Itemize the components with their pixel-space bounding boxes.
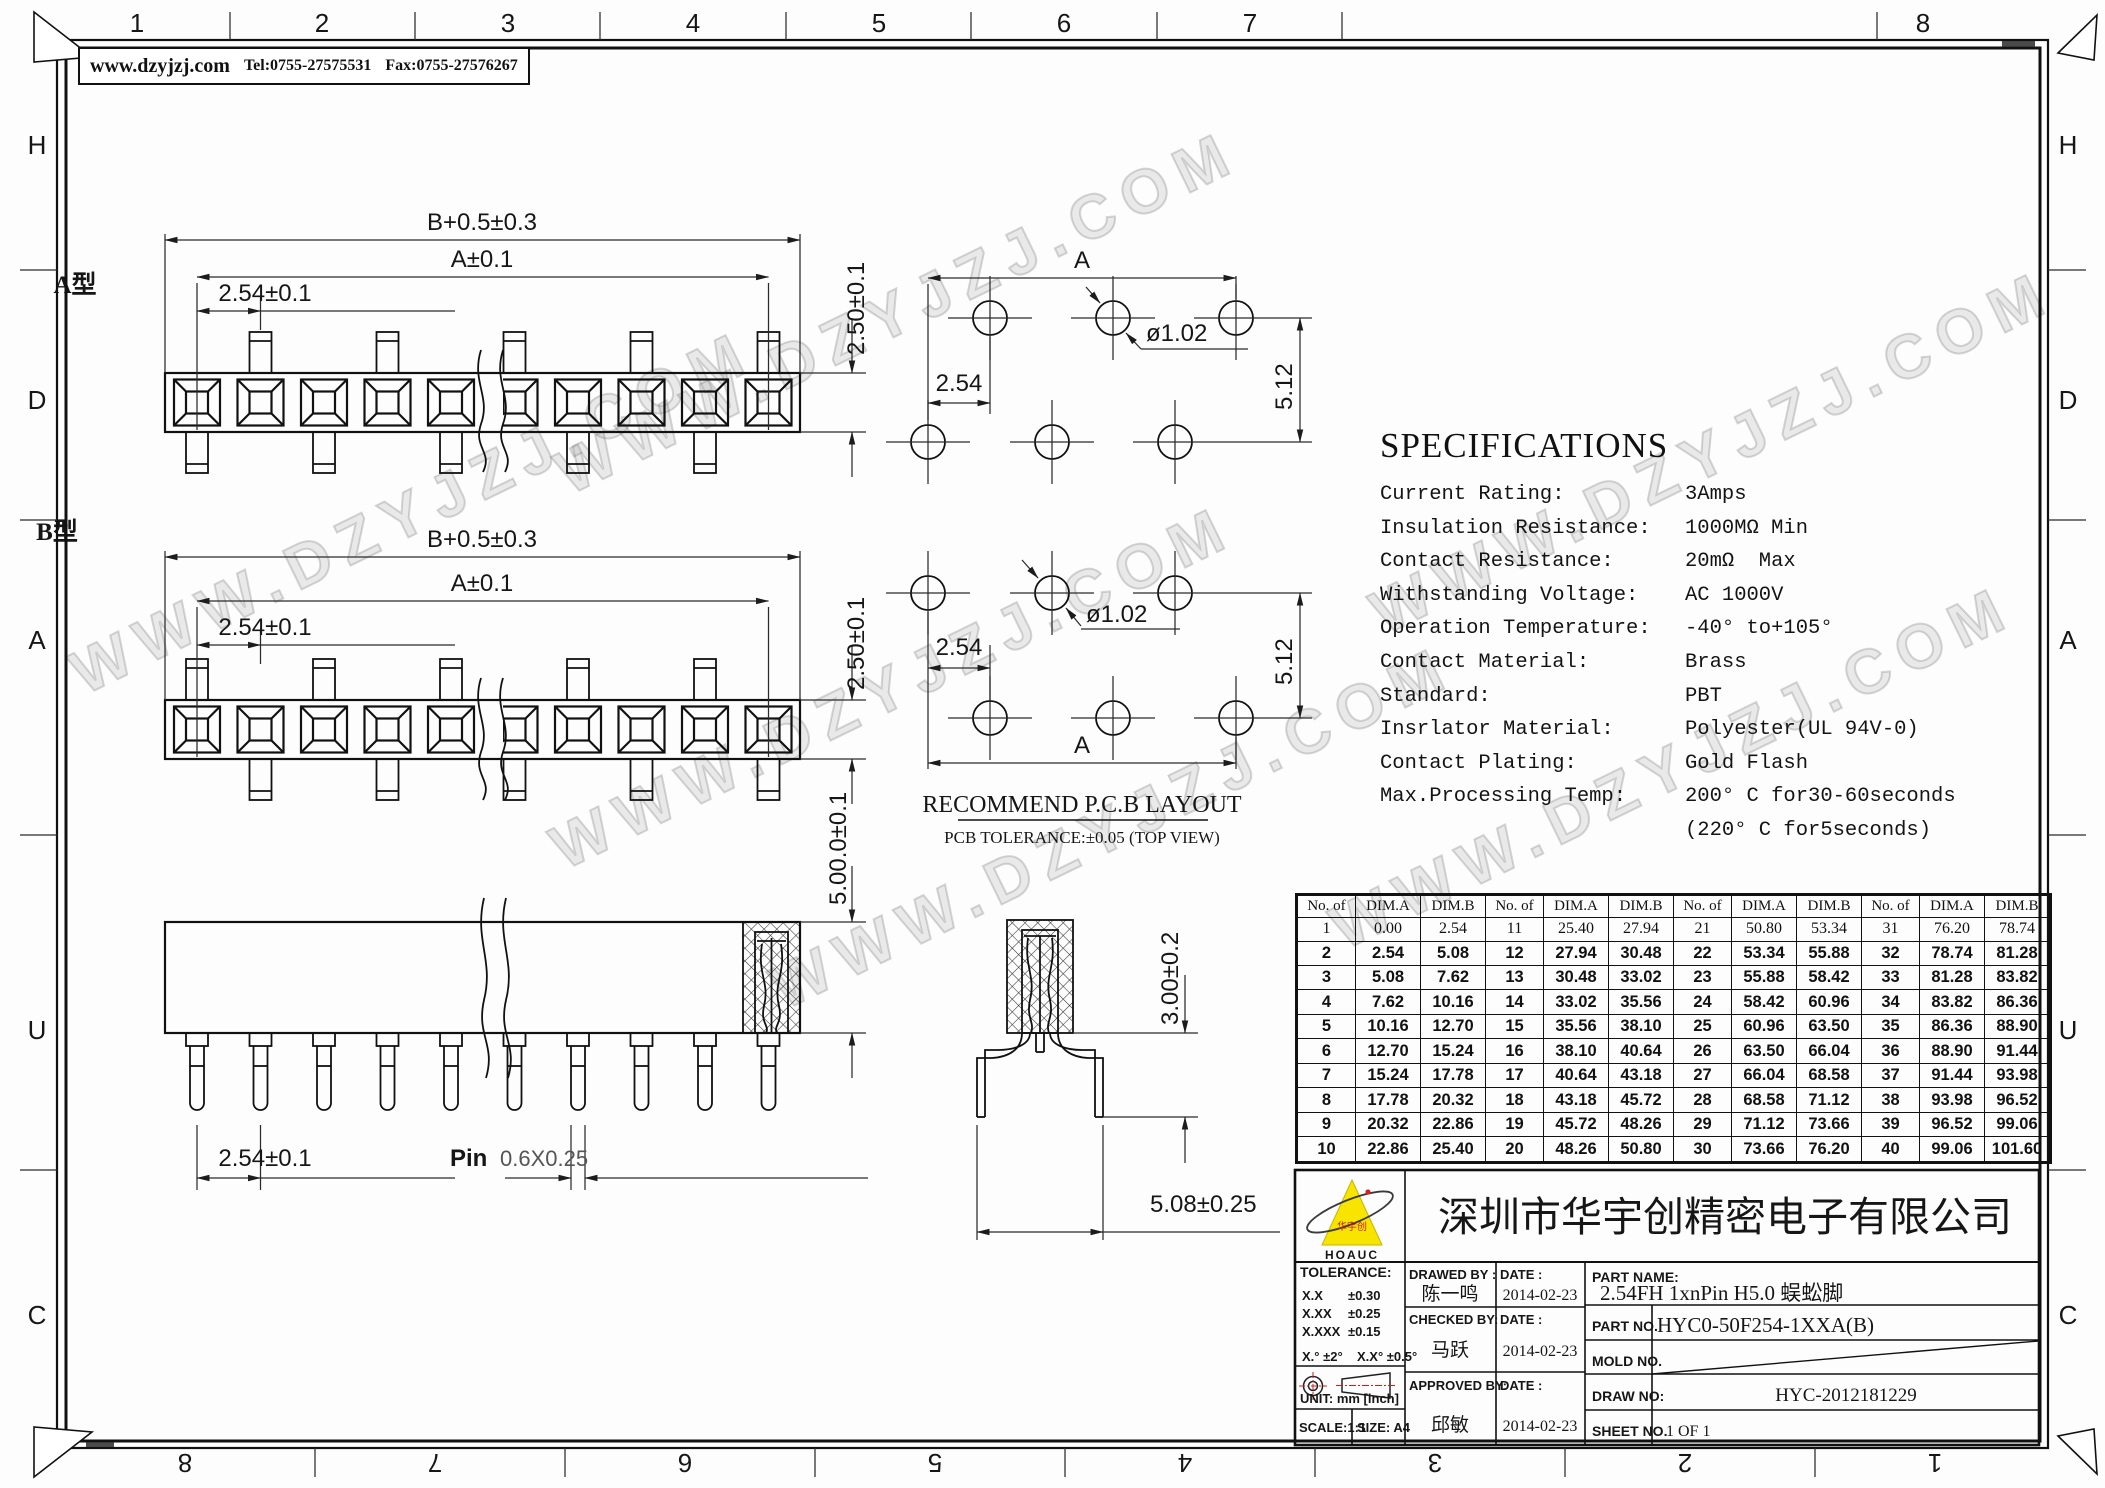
table-cell: 21 [1674, 918, 1732, 941]
table-cell: 12.70 [1421, 1014, 1486, 1038]
pcb-dim-hole-2: ø1.02 [1086, 601, 1147, 628]
table-cell: 71.12 [1732, 1112, 1797, 1136]
smt-leg [504, 332, 526, 373]
part-no-value: HYC0-50F254-1XXA(B) [1657, 1313, 1874, 1337]
table-cell: 38.10 [1544, 1039, 1609, 1063]
table-cell: 83.82 [1920, 990, 1985, 1014]
company-name: 深圳市华宇创精密电子有限公司 [1438, 1194, 2012, 1240]
table-cell: 2.54 [1421, 918, 1486, 941]
contact-pin [317, 1046, 331, 1110]
telephone-text: Tel:0755-27575531 [244, 57, 371, 75]
table-cell: 7.62 [1421, 965, 1486, 989]
table-cell: 33.02 [1544, 990, 1609, 1014]
table-cell: 22.86 [1356, 1137, 1421, 1163]
zone-label: 3 [1428, 1448, 1442, 1478]
contact-header-box: www.dzyjzj.com Tel:0755-27575531 Fax:075… [78, 47, 530, 85]
specifications-section: SPECIFICATIONS Current Rating:3AmpsInsul… [1380, 426, 1956, 848]
fax-text: Fax:0755-27576267 [385, 57, 517, 75]
specifications-rows: Current Rating:3AmpsInsulation Resistanc… [1380, 478, 1956, 848]
zone-label: 2 [1678, 1448, 1692, 1478]
standoff [313, 1033, 335, 1046]
table-cell: 12.70 [1356, 1039, 1421, 1063]
table-cell: 71.12 [1797, 1088, 1862, 1112]
contact-pin [190, 1046, 204, 1110]
contact-pin [571, 1046, 585, 1110]
website-text: www.dzyjzj.com [90, 55, 230, 78]
date-label-3: DATE : [1500, 1378, 1542, 1393]
tol-l3a: X.XXX [1302, 1324, 1341, 1339]
table-cell: 31 [1862, 918, 1920, 941]
table-cell: 43.18 [1544, 1088, 1609, 1112]
table-cell: 5.08 [1356, 965, 1421, 989]
dim-pitch-b: 2.54±0.1 [218, 614, 311, 641]
checked-by-label: CHECKED BY: [1409, 1312, 1498, 1327]
smt-leg [377, 759, 399, 800]
table-cell: 1 [1297, 918, 1356, 941]
spec-row: Current Rating:3Amps [1380, 478, 1956, 512]
spec-row: Operation Temperature:-40° to+105° [1380, 612, 1956, 646]
table-row: 22.545.081227.9430.482253.3455.883278.74… [1297, 941, 2051, 965]
table-cell: 58.42 [1797, 965, 1862, 989]
spec-row: Withstanding Voltage:AC 1000V [1380, 579, 1956, 613]
table-cell: 34 [1862, 990, 1920, 1014]
zone-label: 4 [686, 8, 700, 38]
table-cell: 37 [1862, 1063, 1920, 1087]
contact-pin [254, 1046, 268, 1110]
table-cell: 12 [1486, 941, 1544, 965]
pcb-layout-title: RECOMMEND P.C.B LAYOUT [922, 792, 1242, 818]
pcb-dim-a-1: A [1074, 247, 1090, 274]
engineering-drawing-sheet: { "header": {"website": "www.dzyjzj.com"… [0, 0, 2105, 1488]
table-cell: 22 [1674, 941, 1732, 965]
table-cell: 99.06 [1920, 1137, 1985, 1163]
contact-pin [381, 1046, 395, 1110]
table-cell: 5.08 [1421, 941, 1486, 965]
zone-label: 6 [678, 1448, 692, 1478]
table-header: DIM.B [1421, 895, 1486, 918]
table-cell: 35 [1862, 1014, 1920, 1038]
tolerance-title: TOLERANCE: [1300, 1264, 1392, 1280]
micro-text-mark [86, 1442, 114, 1447]
tol-angle-2: X.X° ±0.5° [1357, 1349, 1417, 1364]
table-header: DIM.A [1732, 895, 1797, 918]
table-cell: 55.88 [1732, 965, 1797, 989]
pcb-layout-subtitle: PCB TOLERANCE:±0.05 (TOP VIEW) [944, 828, 1220, 847]
zone-label: H [28, 130, 47, 160]
smt-leg [313, 659, 335, 700]
table-header: No. of [1674, 895, 1732, 918]
tol-l2b: ±0.25 [1348, 1306, 1380, 1321]
pcb-dim-pitch-2: 2.54 [936, 634, 983, 661]
table-cell: 45.72 [1544, 1112, 1609, 1136]
pcb-dim-row-1: 5.12 [1271, 363, 1298, 410]
drawed-by-name: 陈一鸣 [1421, 1283, 1478, 1305]
table-header: DIM.A [1920, 895, 1985, 918]
table-cell: 27 [1674, 1063, 1732, 1087]
corner-mark-icon [2058, 15, 2097, 60]
table-cell: 39 [1862, 1112, 1920, 1136]
table-row: 612.7015.241638.1040.642663.5066.043688.… [1297, 1039, 2051, 1063]
table-cell: 29 [1674, 1112, 1732, 1136]
tol-angle-1: X.° ±2° [1302, 1349, 1343, 1364]
table-cell: 3 [1297, 965, 1356, 989]
date-value-1: 2014-02-23 [1503, 1287, 1578, 1304]
pcb-dim-a-2: A [1074, 732, 1090, 759]
smt-leg [567, 659, 589, 700]
table-header: No. of [1297, 895, 1356, 918]
standoff [186, 1033, 208, 1046]
standoff [694, 1033, 716, 1046]
table-cell: 33.02 [1609, 965, 1674, 989]
table-cell: 17.78 [1421, 1063, 1486, 1087]
table-cell: 91.44 [1920, 1063, 1985, 1087]
type-a-label: A型 [53, 271, 96, 299]
smt-leg [250, 332, 272, 373]
type-b-dimensions: B+0.5±0.3 A±0.1 2.54±0.1 2.50±0.1 B型 [36, 518, 870, 804]
table-cell: 20.32 [1421, 1088, 1486, 1112]
unit-label: UNIT: mm [inch] [1300, 1391, 1399, 1406]
table-cell: 36 [1862, 1039, 1920, 1063]
contact-pin [508, 1046, 522, 1110]
table-cell: 10 [1297, 1137, 1356, 1163]
dim-height-b: 2.50±0.1 [843, 597, 870, 690]
dim-section-depth: 3.00±0.2 [1157, 932, 1184, 1025]
table-cell: 53.34 [1732, 941, 1797, 965]
table-cell: 0.00 [1356, 918, 1421, 941]
table-row: 510.1612.701535.5638.102560.9663.503586.… [1297, 1014, 2051, 1038]
table-cell: 96.52 [1920, 1112, 1985, 1136]
table-cell: 18 [1486, 1088, 1544, 1112]
table-cell: 101.60 [1985, 1137, 2051, 1163]
pcb-dim-hole-1: ø1.02 [1146, 320, 1207, 347]
table-cell: 9 [1297, 1112, 1356, 1136]
table-cell: 6 [1297, 1039, 1356, 1063]
zone-label: U [2059, 1015, 2078, 1045]
contact-pin [635, 1046, 649, 1110]
table-cell: 16 [1486, 1039, 1544, 1063]
pin-count-dimension-table: No. ofDIM.ADIM.BNo. ofDIM.ADIM.BNo. ofDI… [1295, 893, 2052, 1164]
spec-row: Insrlator Material:Polyester(UL 94V-0) [1380, 713, 1956, 747]
table-cell: 50.80 [1732, 918, 1797, 941]
table-cell: 86.36 [1985, 990, 2051, 1014]
smt-leg [758, 759, 780, 800]
table-cell: 25.40 [1421, 1137, 1486, 1163]
table-row: 817.7820.321843.1845.722868.5871.123893.… [1297, 1088, 2051, 1112]
dim-pitch-a: 2.54±0.1 [218, 280, 311, 307]
smt-leg [250, 759, 272, 800]
part-no-label: PART NO. [1592, 1318, 1658, 1334]
table-cell: 76.20 [1920, 918, 1985, 941]
table-cell: 63.50 [1797, 1014, 1862, 1038]
table-cell: 17 [1486, 1063, 1544, 1087]
table-cell: 5 [1297, 1014, 1356, 1038]
standoff [758, 1033, 780, 1046]
table-row: 715.2417.781740.6443.182766.0468.583791.… [1297, 1063, 2051, 1087]
zone-label: 6 [1057, 8, 1071, 38]
table-cell: 35.56 [1609, 990, 1674, 1014]
table-row: 920.3222.861945.7248.262971.1273.663996.… [1297, 1112, 2051, 1136]
table-cell: 76.20 [1797, 1137, 1862, 1163]
zone-label: A [2059, 625, 2077, 655]
break-lines [478, 350, 511, 1078]
table-cell: 40.64 [1544, 1063, 1609, 1087]
table-cell: 93.98 [1985, 1063, 2051, 1087]
zone-label: 8 [178, 1448, 192, 1478]
tol-l2a: X.XX [1302, 1306, 1332, 1321]
smt-leg [694, 432, 716, 473]
corner-mark-icon [34, 1427, 92, 1477]
zone-label: D [2059, 385, 2078, 415]
approved-by-label: APPROVED BY: [1409, 1378, 1507, 1393]
table-row: 47.6210.161433.0235.562458.4260.963483.8… [1297, 990, 2051, 1014]
table-cell: 66.04 [1797, 1039, 1862, 1063]
standoff [440, 1033, 462, 1046]
sheet-no-value: 1 OF 1 [1666, 1423, 1710, 1440]
title-block: 华宇创 HOAUC 深圳市华宇创精密电子有限公司 TOLERANCE: X.X … [1295, 1170, 2039, 1445]
smt-leg [440, 659, 462, 700]
table-cell: 81.28 [1920, 965, 1985, 989]
table-cell: 10.16 [1421, 990, 1486, 1014]
table-cell: 22.86 [1421, 1112, 1486, 1136]
mold-no-label: MOLD NO. [1592, 1353, 1662, 1369]
table-cell: 27.94 [1544, 941, 1609, 965]
zone-label: 1 [1928, 1448, 1942, 1478]
table-cell: 93.98 [1920, 1088, 1985, 1112]
date-value-2: 2014-02-23 [1503, 1343, 1578, 1360]
table-cell: 33 [1862, 965, 1920, 989]
spec-row: Max.Processing Temp:200° C for30-60secon… [1380, 780, 1956, 814]
table-header: DIM.B [1985, 895, 2051, 918]
spec-row: Insulation Resistance:1000MΩ Min [1380, 512, 1956, 546]
table-cell: 48.26 [1544, 1137, 1609, 1163]
table-cell: 40 [1862, 1137, 1920, 1163]
table-cell: 99.06 [1985, 1112, 2051, 1136]
tol-l1a: X.X [1302, 1288, 1323, 1303]
spec-row: Contact Resistance:20mΩ Max [1380, 545, 1956, 579]
table-cell: 20 [1486, 1137, 1544, 1163]
pcb-dim-pitch-1: 2.54 [936, 370, 983, 397]
spec-row: Contact Material:Brass [1380, 646, 1956, 680]
smt-leg [186, 432, 208, 473]
table-header: DIM.B [1609, 895, 1674, 918]
contact-pin [698, 1046, 712, 1110]
table-cell: 43.18 [1609, 1063, 1674, 1087]
table-cell: 40.64 [1609, 1039, 1674, 1063]
zone-label: 1 [130, 8, 144, 38]
table-cell: 78.74 [1985, 918, 2051, 941]
contact-pin [444, 1046, 458, 1110]
table-header: No. of [1862, 895, 1920, 918]
table-cell: 26 [1674, 1039, 1732, 1063]
drawed-by-label: DRAWED BY : [1409, 1267, 1496, 1282]
dimension-table-container: No. ofDIM.ADIM.BNo. ofDIM.ADIM.BNo. ofDI… [1295, 893, 2052, 1164]
smt-leg [313, 432, 335, 473]
logo-cn-text: 华宇创 [1337, 1220, 1367, 1233]
table-cell: 10.16 [1356, 1014, 1421, 1038]
table-cell: 50.80 [1609, 1137, 1674, 1163]
table-cell: 91.44 [1985, 1039, 2051, 1063]
table-cell: 7.62 [1356, 990, 1421, 1014]
date-label-1: DATE : [1500, 1267, 1542, 1282]
zone-label: 2 [315, 8, 329, 38]
table-cell: 60.96 [1732, 1014, 1797, 1038]
front-section-detail [743, 922, 800, 1033]
table-row: 35.087.621330.4833.022355.8858.423381.28… [1297, 965, 2051, 989]
zone-label: 4 [1178, 1448, 1192, 1478]
smt-leg [377, 332, 399, 373]
table-cell: 68.58 [1797, 1063, 1862, 1087]
table-cell: 15.24 [1421, 1039, 1486, 1063]
table-cell: 38 [1862, 1088, 1920, 1112]
size-label: SIZE: A4 [1357, 1420, 1411, 1435]
logo-brand-text: HOAUC [1325, 1248, 1379, 1262]
zone-label: U [28, 1015, 47, 1045]
table-cell: 35.56 [1544, 1014, 1609, 1038]
part-name-value: 2.54FH 1xnPin H5.0 蜈蚣脚 [1600, 1281, 1843, 1305]
table-cell: 28 [1674, 1088, 1732, 1112]
table-cell: 32 [1862, 941, 1920, 965]
zone-label: C [28, 1300, 47, 1330]
zone-label: D [28, 385, 47, 415]
table-row: 1022.8625.402048.2650.803073.6676.204099… [1297, 1137, 2051, 1163]
smt-leg [694, 659, 716, 700]
table-cell: 15 [1486, 1014, 1544, 1038]
smt-leg [440, 432, 462, 473]
table-cell: 86.36 [1920, 1014, 1985, 1038]
specifications-title: SPECIFICATIONS [1380, 426, 1956, 466]
dim-pitch-front: 2.54±0.1 [218, 1145, 311, 1172]
table-cell: 68.58 [1732, 1088, 1797, 1112]
corner-mark-icon [2058, 1429, 2097, 1474]
smt-leg [631, 332, 653, 373]
mold-no-blank-slash [1652, 1341, 2038, 1374]
table-cell: 15.24 [1356, 1063, 1421, 1087]
table-cell: 96.52 [1985, 1088, 2051, 1112]
table-cell: 13 [1486, 965, 1544, 989]
section-view: 3.00±0.2 5.08±0.25 [977, 920, 1280, 1240]
table-cell: 73.66 [1797, 1112, 1862, 1136]
tol-l1b: ±0.30 [1348, 1288, 1380, 1303]
table-cell: 78.74 [1920, 941, 1985, 965]
zone-label: 7 [428, 1448, 442, 1478]
company-logo-icon: 华宇创 HOAUC [1303, 1180, 1397, 1262]
standoff [631, 1033, 653, 1046]
dim-height-a: 2.50±0.1 [843, 262, 870, 355]
table-cell: 11 [1486, 918, 1544, 941]
table-cell: 7 [1297, 1063, 1356, 1087]
smt-leg [631, 759, 653, 800]
table-cell: 55.88 [1797, 941, 1862, 965]
table-cell: 8 [1297, 1088, 1356, 1112]
date-label-2: DATE : [1500, 1312, 1542, 1327]
table-cell: 27.94 [1609, 918, 1674, 941]
zone-label: 3 [501, 8, 515, 38]
spec-row: Standard:PBT [1380, 680, 1956, 714]
table-cell: 2.54 [1356, 941, 1421, 965]
zone-label: H [2059, 130, 2078, 160]
table-cell: 4 [1297, 990, 1356, 1014]
table-cell: 58.42 [1732, 990, 1797, 1014]
zone-label: 5 [872, 8, 886, 38]
sheet-no-label: SHEET NO. [1592, 1423, 1667, 1439]
table-cell: 73.66 [1732, 1137, 1797, 1163]
table-cell: 81.28 [1985, 941, 2051, 965]
table-cell: 30 [1674, 1137, 1732, 1163]
dim-total-height: 5.00.0±0.1 [825, 792, 852, 905]
table-cell: 45.72 [1609, 1088, 1674, 1112]
table-cell: 14 [1486, 990, 1544, 1014]
dim-a-b: A±0.1 [451, 570, 514, 597]
tol-l3b: ±0.15 [1348, 1324, 1380, 1339]
table-cell: 30.48 [1609, 941, 1674, 965]
table-header: DIM.A [1544, 895, 1609, 918]
pin-size: 0.6X0.25 [500, 1146, 588, 1171]
table-cell: 2 [1297, 941, 1356, 965]
table-cell: 30.48 [1544, 965, 1609, 989]
table-row: 10.002.541125.4027.942150.8053.343176.20… [1297, 918, 2051, 941]
table-cell: 19 [1486, 1112, 1544, 1136]
table-cell: 63.50 [1732, 1039, 1797, 1063]
spec-row: (220° C for5seconds) [1380, 814, 1956, 848]
pcb-dim-row-2: 5.12 [1271, 638, 1298, 685]
table-cell: 23 [1674, 965, 1732, 989]
draw-no-label: DRAW NO: [1592, 1388, 1664, 1404]
table-header: DIM.A [1356, 895, 1421, 918]
pcb-layout-dimensions: A 2.54 ø1.02 5.12 2.54 ø1.02 5.12 A RECO… [922, 247, 1300, 847]
table-cell: 17.78 [1356, 1088, 1421, 1112]
checked-by-name: 马跃 [1431, 1339, 1469, 1361]
date-value-3: 2014-02-23 [1503, 1418, 1578, 1435]
standoff [567, 1033, 589, 1046]
dim-a-a: A±0.1 [451, 246, 514, 273]
table-cell: 60.96 [1797, 990, 1862, 1014]
standoff [377, 1033, 399, 1046]
table-header: No. of [1486, 895, 1544, 918]
dim-overall-a: B+0.5±0.3 [427, 209, 537, 236]
micro-text-mark [2002, 41, 2035, 47]
approved-by-name: 邱敏 [1431, 1414, 1469, 1436]
zone-label: C [2059, 1300, 2078, 1330]
table-cell: 83.82 [1985, 965, 2051, 989]
table-cell: 38.10 [1609, 1014, 1674, 1038]
zone-label: 5 [928, 1448, 942, 1478]
dim-section-span: 5.08±0.25 [1150, 1191, 1257, 1218]
table-header: DIM.B [1797, 895, 1862, 918]
table-cell: 66.04 [1732, 1063, 1797, 1087]
draw-no-value: HYC-2012181229 [1775, 1385, 1916, 1406]
spec-row: Contact Plating:Gold Flash [1380, 747, 1956, 781]
table-cell: 53.34 [1797, 918, 1862, 941]
dim-overall-b: B+0.5±0.3 [427, 526, 537, 553]
zone-label: 7 [1243, 8, 1257, 38]
zone-label: 8 [1916, 8, 1930, 38]
table-cell: 25.40 [1544, 918, 1609, 941]
table-cell: 25 [1674, 1014, 1732, 1038]
standoff [250, 1033, 272, 1046]
table-cell: 48.26 [1609, 1112, 1674, 1136]
table-cell: 24 [1674, 990, 1732, 1014]
pin-label: Pin [450, 1145, 487, 1172]
contact-pin [762, 1046, 776, 1110]
table-cell: 20.32 [1356, 1112, 1421, 1136]
table-cell: 88.90 [1920, 1039, 1985, 1063]
table-cell: 88.90 [1985, 1014, 2051, 1038]
smt-leg [567, 432, 589, 473]
zone-label: A [28, 625, 46, 655]
